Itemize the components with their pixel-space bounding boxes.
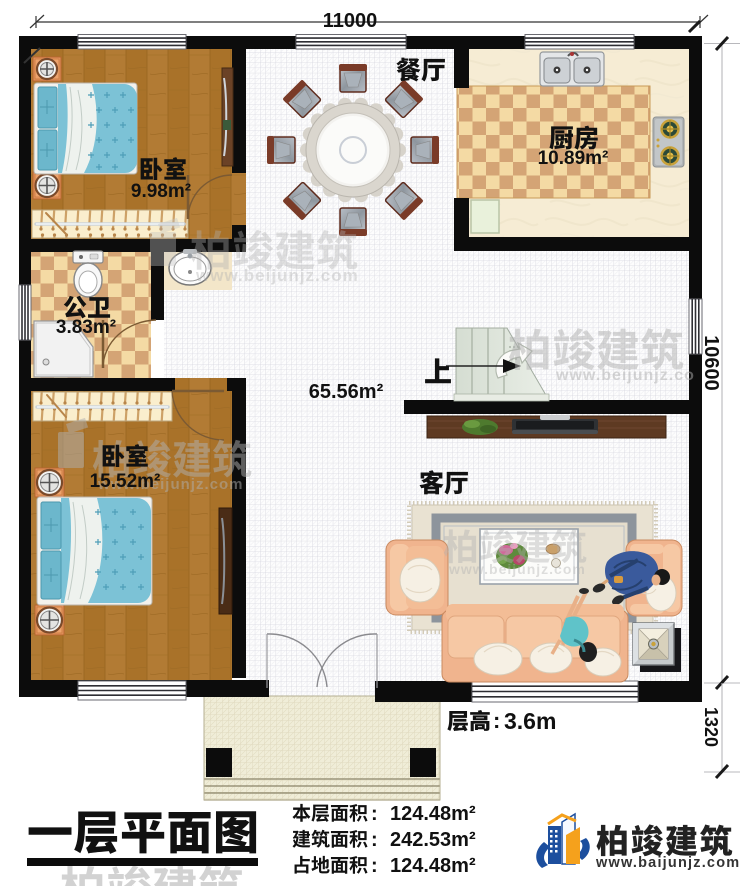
svg-text::: : <box>371 803 378 825</box>
svg-text:1320: 1320 <box>701 707 721 747</box>
svg-text::: : <box>371 829 378 851</box>
svg-text:124.48m²: 124.48m² <box>390 803 476 825</box>
svg-text:10600: 10600 <box>700 335 722 391</box>
svg-text::: : <box>371 855 378 877</box>
svg-text:3.83m²: 3.83m² <box>56 317 116 338</box>
svg-text:10.89m²: 10.89m² <box>538 148 609 169</box>
svg-text:www.beijunjz.com: www.beijunjz.com <box>195 266 359 285</box>
svg-text::: : <box>493 708 500 733</box>
svg-text:124.48m²: 124.48m² <box>390 855 476 877</box>
svg-text:242.53m²: 242.53m² <box>390 829 476 851</box>
svg-text:9.98m²: 9.98m² <box>131 181 191 202</box>
svg-text:3.6m: 3.6m <box>504 708 556 734</box>
svg-text:11000: 11000 <box>323 10 378 32</box>
svg-text:www.baijunjz.com: www.baijunjz.com <box>595 855 740 871</box>
svg-text:15.52m²: 15.52m² <box>90 471 161 492</box>
svg-text:www.beijunjz.co: www.beijunjz.co <box>555 367 695 384</box>
svg-text:65.56m²: 65.56m² <box>309 381 384 403</box>
svg-text:www.beijunjz.com: www.beijunjz.com <box>448 561 586 577</box>
